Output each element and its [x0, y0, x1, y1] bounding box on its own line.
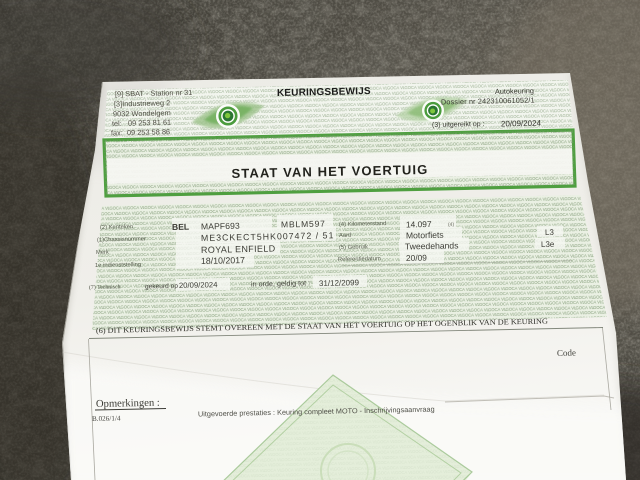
svg-text:Code: Code	[557, 348, 576, 358]
svg-text:MAPF693: MAPF693	[201, 221, 240, 232]
svg-text:(5) Gebruik: (5) Gebruik	[339, 244, 368, 251]
svg-text:20/09/2024: 20/09/2024	[179, 280, 218, 290]
svg-text:in orde, geldig tot :: in orde, geldig tot :	[251, 278, 310, 288]
svg-text:(2) Kenteken: (2) Kenteken	[100, 224, 133, 231]
svg-text:Aard: Aard	[339, 233, 351, 239]
svg-text:Opmerkingen :: Opmerkingen :	[96, 398, 160, 410]
svg-text:gekeurd op: gekeurd op	[145, 283, 178, 291]
svg-text:1e indienststelling: 1e indienststelling	[95, 262, 141, 269]
svg-text:[9] SBAT - Station nr 31: [9] SBAT - Station nr 31	[115, 88, 193, 99]
svg-text:Autokeuring: Autokeuring	[495, 86, 534, 96]
svg-text:MBLM597: MBLM597	[281, 219, 326, 230]
svg-text:20/09/2024: 20/09/2024	[501, 119, 542, 129]
svg-text:Referentiedatum: Referentiedatum	[338, 256, 381, 263]
svg-text:31/12/2099: 31/12/2099	[319, 278, 360, 288]
svg-text:18/10/2017: 18/10/2017	[201, 255, 245, 266]
svg-text:(4): (4)	[448, 222, 455, 228]
svg-text:KEURINGSBEWIJS: KEURINGSBEWIJS	[277, 86, 371, 99]
svg-text:ROYAL ENFIELD: ROYAL ENFIELD	[201, 243, 276, 255]
svg-text:(1)Chassisnummer: (1)Chassisnummer	[97, 236, 146, 243]
svg-text:B.026/1/4: B.026/1/4	[92, 414, 121, 423]
svg-text:BEL: BEL	[172, 222, 189, 232]
svg-text:14.097: 14.097	[406, 219, 432, 230]
svg-text:(4) Kilometerstand: (4) Kilometerstand	[339, 221, 386, 228]
svg-text:Tweedehands: Tweedehands	[405, 240, 459, 251]
svg-text:[3]Industrieweg 2: [3]Industrieweg 2	[114, 98, 170, 108]
svg-text:fax: 09 253 58 86: fax: 09 253 58 86	[111, 127, 170, 137]
svg-text:(3) uitgereikt op :: (3) uitgereikt op :	[432, 121, 485, 129]
svg-text:L3: L3	[545, 228, 555, 237]
svg-text:Merk: Merk	[96, 250, 109, 256]
svg-text:20/09: 20/09	[406, 253, 428, 263]
svg-text:Motorfiets: Motorfiets	[406, 230, 444, 241]
svg-text:(7) Technisch: (7) Technisch	[89, 283, 121, 291]
svg-text:L3e: L3e	[541, 240, 555, 249]
